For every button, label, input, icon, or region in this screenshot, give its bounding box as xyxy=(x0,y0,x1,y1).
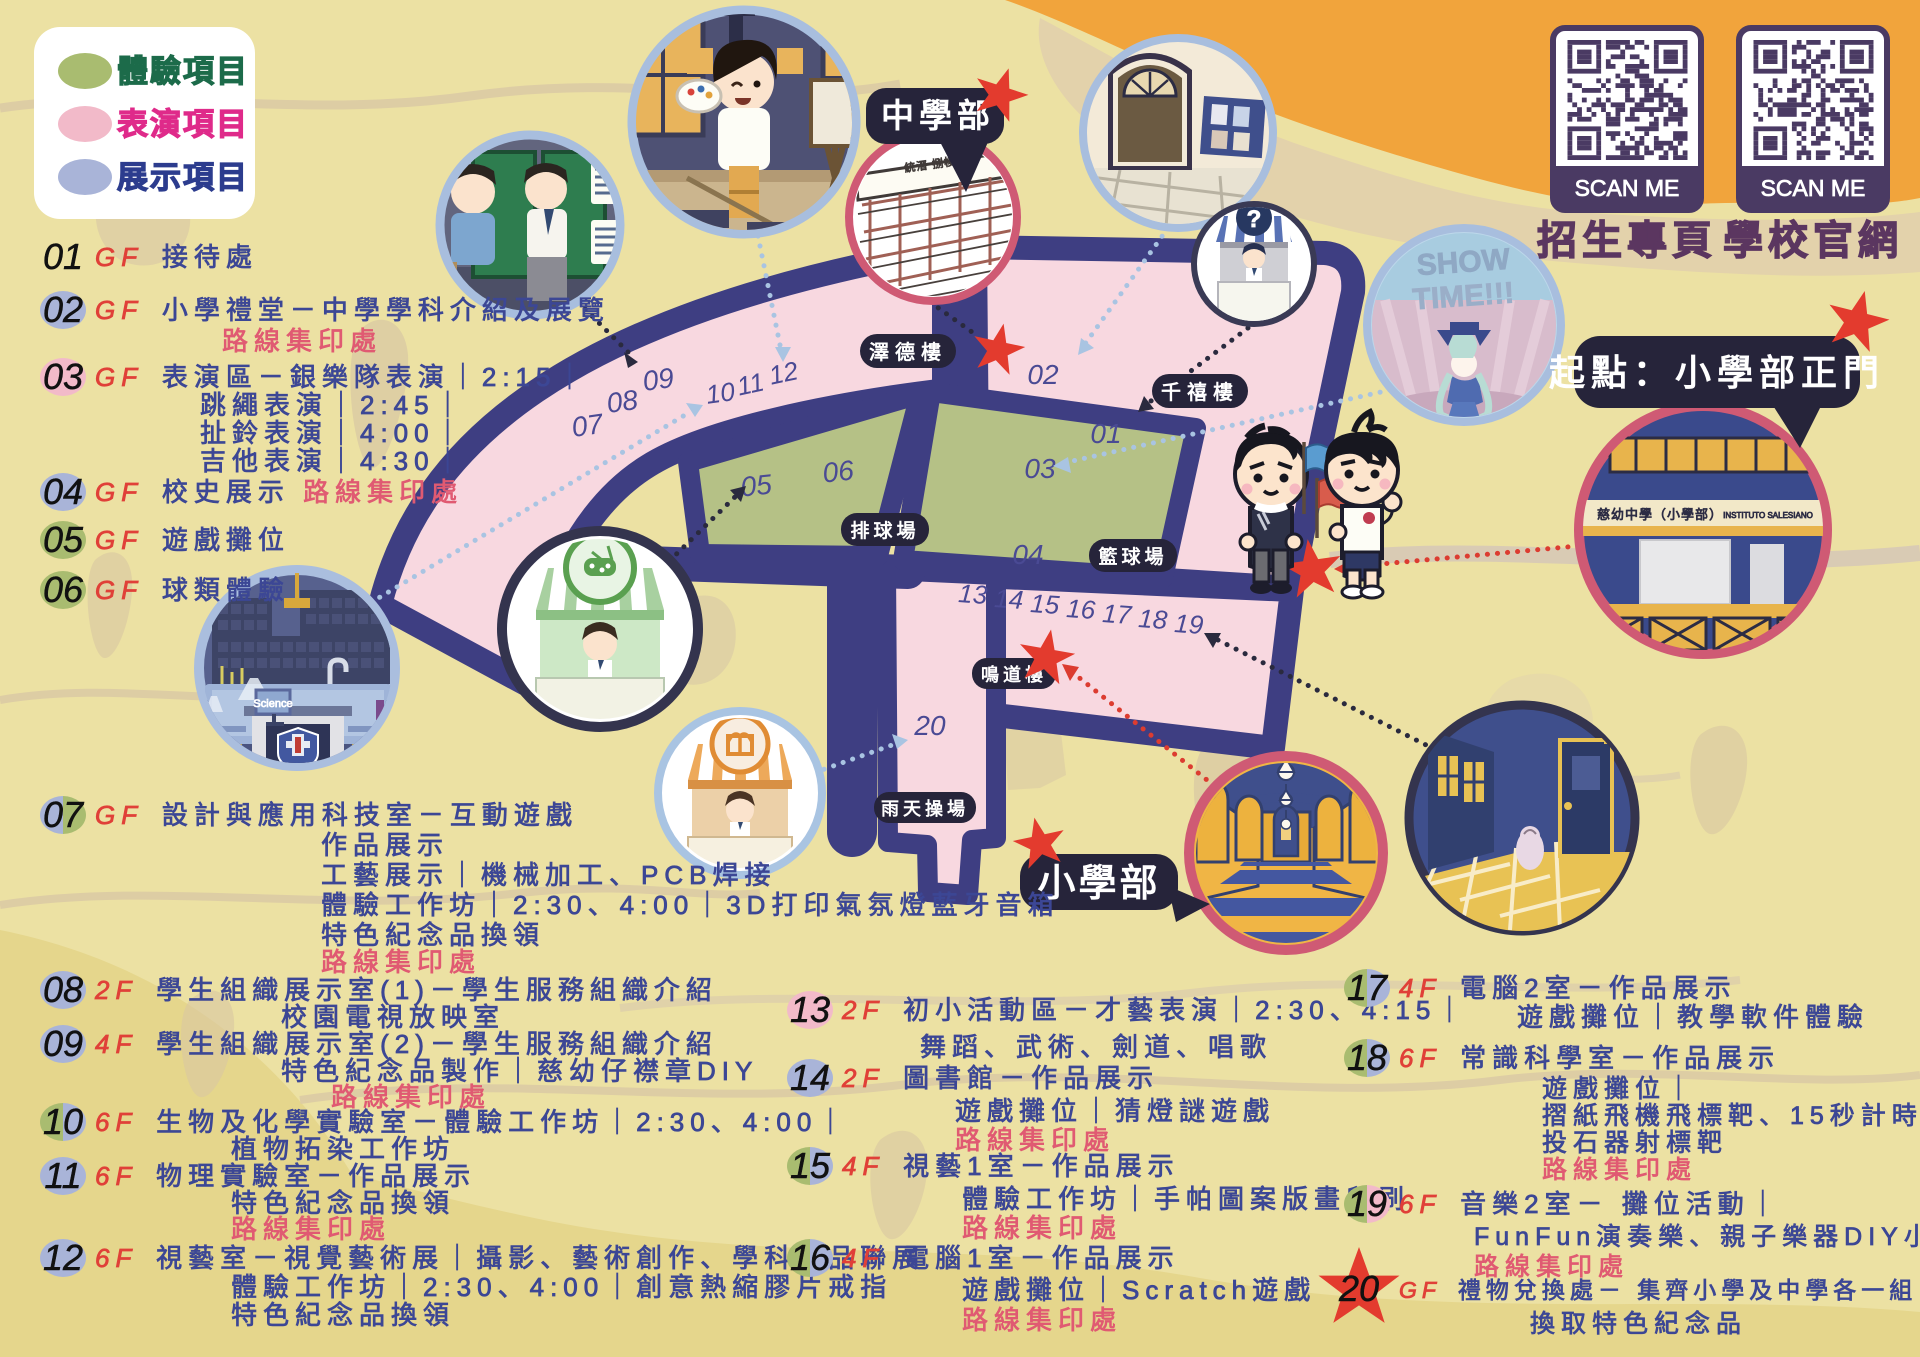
svg-text:SCAN ME: SCAN ME xyxy=(1761,175,1866,201)
svg-text:GF 校史展示 路線集印處: GF 校史展示 路線集印處 xyxy=(95,477,463,507)
svg-text:植物拓染工作坊: 植物拓染工作坊 xyxy=(231,1134,455,1164)
svg-text:4F 電腦1室－作品展示: 4F 電腦1室－作品展示 xyxy=(842,1243,1180,1273)
svg-text:01: 01 xyxy=(1090,418,1121,449)
svg-text:特色紀念品換領: 特色紀念品換領 xyxy=(231,1300,455,1330)
svg-text:排球場: 排球場 xyxy=(850,519,919,542)
svg-text:表演項目: 表演項目 xyxy=(117,107,249,142)
svg-text:4F 視藝1室－作品展示: 4F 視藝1室－作品展示 xyxy=(842,1151,1180,1181)
svg-text:SHOW: SHOW xyxy=(1416,243,1512,282)
svg-text:學校官網: 學校官網 xyxy=(1723,219,1903,263)
svg-text:2F 圖書館－作品展示: 2F 圖書館－作品展示 xyxy=(841,1063,1159,1093)
svg-text:遊戲攤位｜: 遊戲攤位｜ xyxy=(1542,1075,1697,1103)
svg-text:扯鈴表演｜4:00｜: 扯鈴表演｜4:00｜ xyxy=(200,418,467,448)
svg-text:GF 遊戲攤位: GF 遊戲攤位 xyxy=(95,525,290,555)
svg-text:02: 02 xyxy=(1027,359,1059,390)
svg-text:19: 19 xyxy=(1347,1183,1387,1224)
svg-text:03: 03 xyxy=(1024,453,1056,484)
svg-text:08: 08 xyxy=(605,384,641,419)
svg-text:12: 12 xyxy=(43,1237,83,1278)
svg-text:遊戲攤位｜猜燈謎遊戲: 遊戲攤位｜猜燈謎遊戲 xyxy=(955,1096,1275,1126)
svg-text:體驗工作坊｜手帕圖案版畫印刷: 體驗工作坊｜手帕圖案版畫印刷 xyxy=(962,1184,1410,1214)
svg-text:FunFun演奏樂、親子樂器DIY小空間: FunFun演奏樂、親子樂器DIY小空間 xyxy=(1474,1223,1920,1251)
svg-text:起點：小學部正門: 起點：小學部正門 xyxy=(1549,352,1885,393)
svg-text:跳繩表演｜2:45｜: 跳繩表演｜2:45｜ xyxy=(200,390,467,420)
svg-text:20: 20 xyxy=(1338,1268,1379,1309)
svg-text:體驗項目: 體驗項目 xyxy=(117,54,249,89)
svg-text:GF 設計與應用科技室－互動遊戲: GF 設計與應用科技室－互動遊戲 xyxy=(95,800,578,830)
svg-text:路線集印處: 路線集印處 xyxy=(231,1214,391,1244)
svg-text:GF 接待處: GF 接待處 xyxy=(95,242,258,272)
svg-text:15: 15 xyxy=(1029,588,1060,620)
svg-text:GF 球類體驗: GF 球類體驗 xyxy=(95,575,290,605)
svg-text:路線集印處: 路線集印處 xyxy=(1542,1156,1697,1184)
svg-text:校園電視放映室: 校園電視放映室 xyxy=(281,1002,505,1032)
svg-text:GF 禮物兌換處－ 集齊小學及中學各一組「路線五印」: GF 禮物兌換處－ 集齊小學及中學各一組「路線五印」 xyxy=(1399,1277,1920,1303)
svg-text:舞蹈、武術、劍道、唱歌: 舞蹈、武術、劍道、唱歌 xyxy=(920,1032,1272,1062)
svg-text:16: 16 xyxy=(1065,593,1096,625)
svg-text:慈幼中學（小學部）: 慈幼中學（小學部） xyxy=(1597,507,1723,522)
svg-text:20: 20 xyxy=(913,710,946,741)
svg-text:千禧樓: 千禧樓 xyxy=(1161,380,1239,404)
svg-text:?: ? xyxy=(1247,206,1262,233)
svg-text:投石器射標靶: 投石器射標靶 xyxy=(1542,1129,1728,1157)
svg-text:中學部: 中學部 xyxy=(881,97,995,134)
svg-text:13: 13 xyxy=(957,578,988,610)
svg-text:作品展示: 作品展示 xyxy=(321,830,449,860)
svg-text:14: 14 xyxy=(790,1057,830,1098)
svg-text:10: 10 xyxy=(43,1101,83,1142)
svg-text:遊戲攤位｜Scratch遊戲: 遊戲攤位｜Scratch遊戲 xyxy=(962,1275,1316,1305)
svg-text:13: 13 xyxy=(790,989,830,1030)
svg-text:6F 生物及化學實驗室－體驗工作坊｜2:30、4:00｜: 6F 生物及化學實驗室－體驗工作坊｜2:30、4:00｜ xyxy=(95,1107,849,1137)
svg-text:遊戲攤位｜教學軟件體驗: 遊戲攤位｜教學軟件體驗 xyxy=(1517,1002,1869,1032)
svg-text:雨天操場: 雨天操場 xyxy=(881,798,969,819)
svg-text:07: 07 xyxy=(570,408,607,443)
svg-text:特色紀念品換領: 特色紀念品換領 xyxy=(321,920,545,950)
svg-text:07: 07 xyxy=(43,794,85,835)
svg-text:01: 01 xyxy=(43,236,83,277)
svg-text:17: 17 xyxy=(1101,598,1133,630)
svg-text:路線集印處: 路線集印處 xyxy=(222,326,382,356)
svg-text:GF 小學禮堂－中學學科介紹及展覽: GF 小學禮堂－中學學科介紹及展覽 xyxy=(95,295,610,325)
svg-text:GF 表演區－銀樂隊表演｜2:15｜: GF 表演區－銀樂隊表演｜2:15｜ xyxy=(95,362,588,392)
svg-text:澤德樓: 澤德樓 xyxy=(869,340,947,364)
svg-text:08: 08 xyxy=(43,969,83,1010)
svg-text:2F 學生組織展示室(1)－學生服務組織介紹: 2F 學生組織展示室(1)－學生服務組織介紹 xyxy=(94,975,718,1005)
svg-text:09: 09 xyxy=(43,1023,83,1064)
svg-text:籃球場: 籃球場 xyxy=(1098,545,1167,568)
svg-text:06: 06 xyxy=(43,569,84,610)
svg-text:INSTITUTO SALESIANO: INSTITUTO SALESIANO xyxy=(1723,511,1813,520)
svg-text:19: 19 xyxy=(1173,608,1204,640)
svg-text:換取特色紀念品: 換取特色紀念品 xyxy=(1530,1310,1747,1338)
svg-text:17: 17 xyxy=(1347,967,1389,1008)
svg-text:14: 14 xyxy=(993,583,1024,615)
svg-text:15: 15 xyxy=(790,1145,831,1186)
svg-text:招生專頁: 招生專頁 xyxy=(1537,219,1717,263)
svg-text:04: 04 xyxy=(1012,539,1043,570)
svg-text:路線集印處: 路線集印處 xyxy=(962,1213,1122,1243)
svg-text:16: 16 xyxy=(790,1237,831,1278)
svg-text:06: 06 xyxy=(821,454,856,488)
svg-text:SCAN ME: SCAN ME xyxy=(1575,175,1680,201)
svg-text:4F 電腦2室－作品展示: 4F 電腦2室－作品展示 xyxy=(1399,973,1737,1003)
svg-text:吉他表演｜4:30｜: 吉他表演｜4:30｜ xyxy=(200,446,467,476)
svg-text:03: 03 xyxy=(43,356,83,397)
svg-text:體驗工作坊｜2:30、4:00｜3D打印氣氛燈藍牙音箱: 體驗工作坊｜2:30、4:00｜3D打印氣氛燈藍牙音箱 xyxy=(321,890,1059,920)
svg-text:10: 10 xyxy=(704,376,737,410)
svg-text:09: 09 xyxy=(641,362,676,397)
svg-text:02: 02 xyxy=(43,289,83,330)
svg-text:05: 05 xyxy=(43,519,84,560)
svg-text:18: 18 xyxy=(1137,603,1168,635)
svg-text:工藝展示｜機械加工、PCB焊接: 工藝展示｜機械加工、PCB焊接 xyxy=(321,860,776,890)
svg-text:4F 學生組織展示室(2)－學生服務組織介紹: 4F 學生組織展示室(2)－學生服務組織介紹 xyxy=(95,1029,718,1059)
svg-text:05: 05 xyxy=(739,468,774,502)
svg-text:Science: Science xyxy=(253,698,292,710)
svg-text:摺紙飛機飛標靶、15秒計時活動: 摺紙飛機飛標靶、15秒計時活動 xyxy=(1542,1102,1920,1130)
svg-text:路線集印處: 路線集印處 xyxy=(321,947,481,977)
svg-text:展示項目: 展示項目 xyxy=(117,160,249,195)
svg-text:路線集印處: 路線集印處 xyxy=(962,1305,1122,1335)
svg-text:11: 11 xyxy=(44,1155,81,1196)
svg-text:04: 04 xyxy=(43,471,83,512)
svg-text:18: 18 xyxy=(1347,1037,1387,1078)
